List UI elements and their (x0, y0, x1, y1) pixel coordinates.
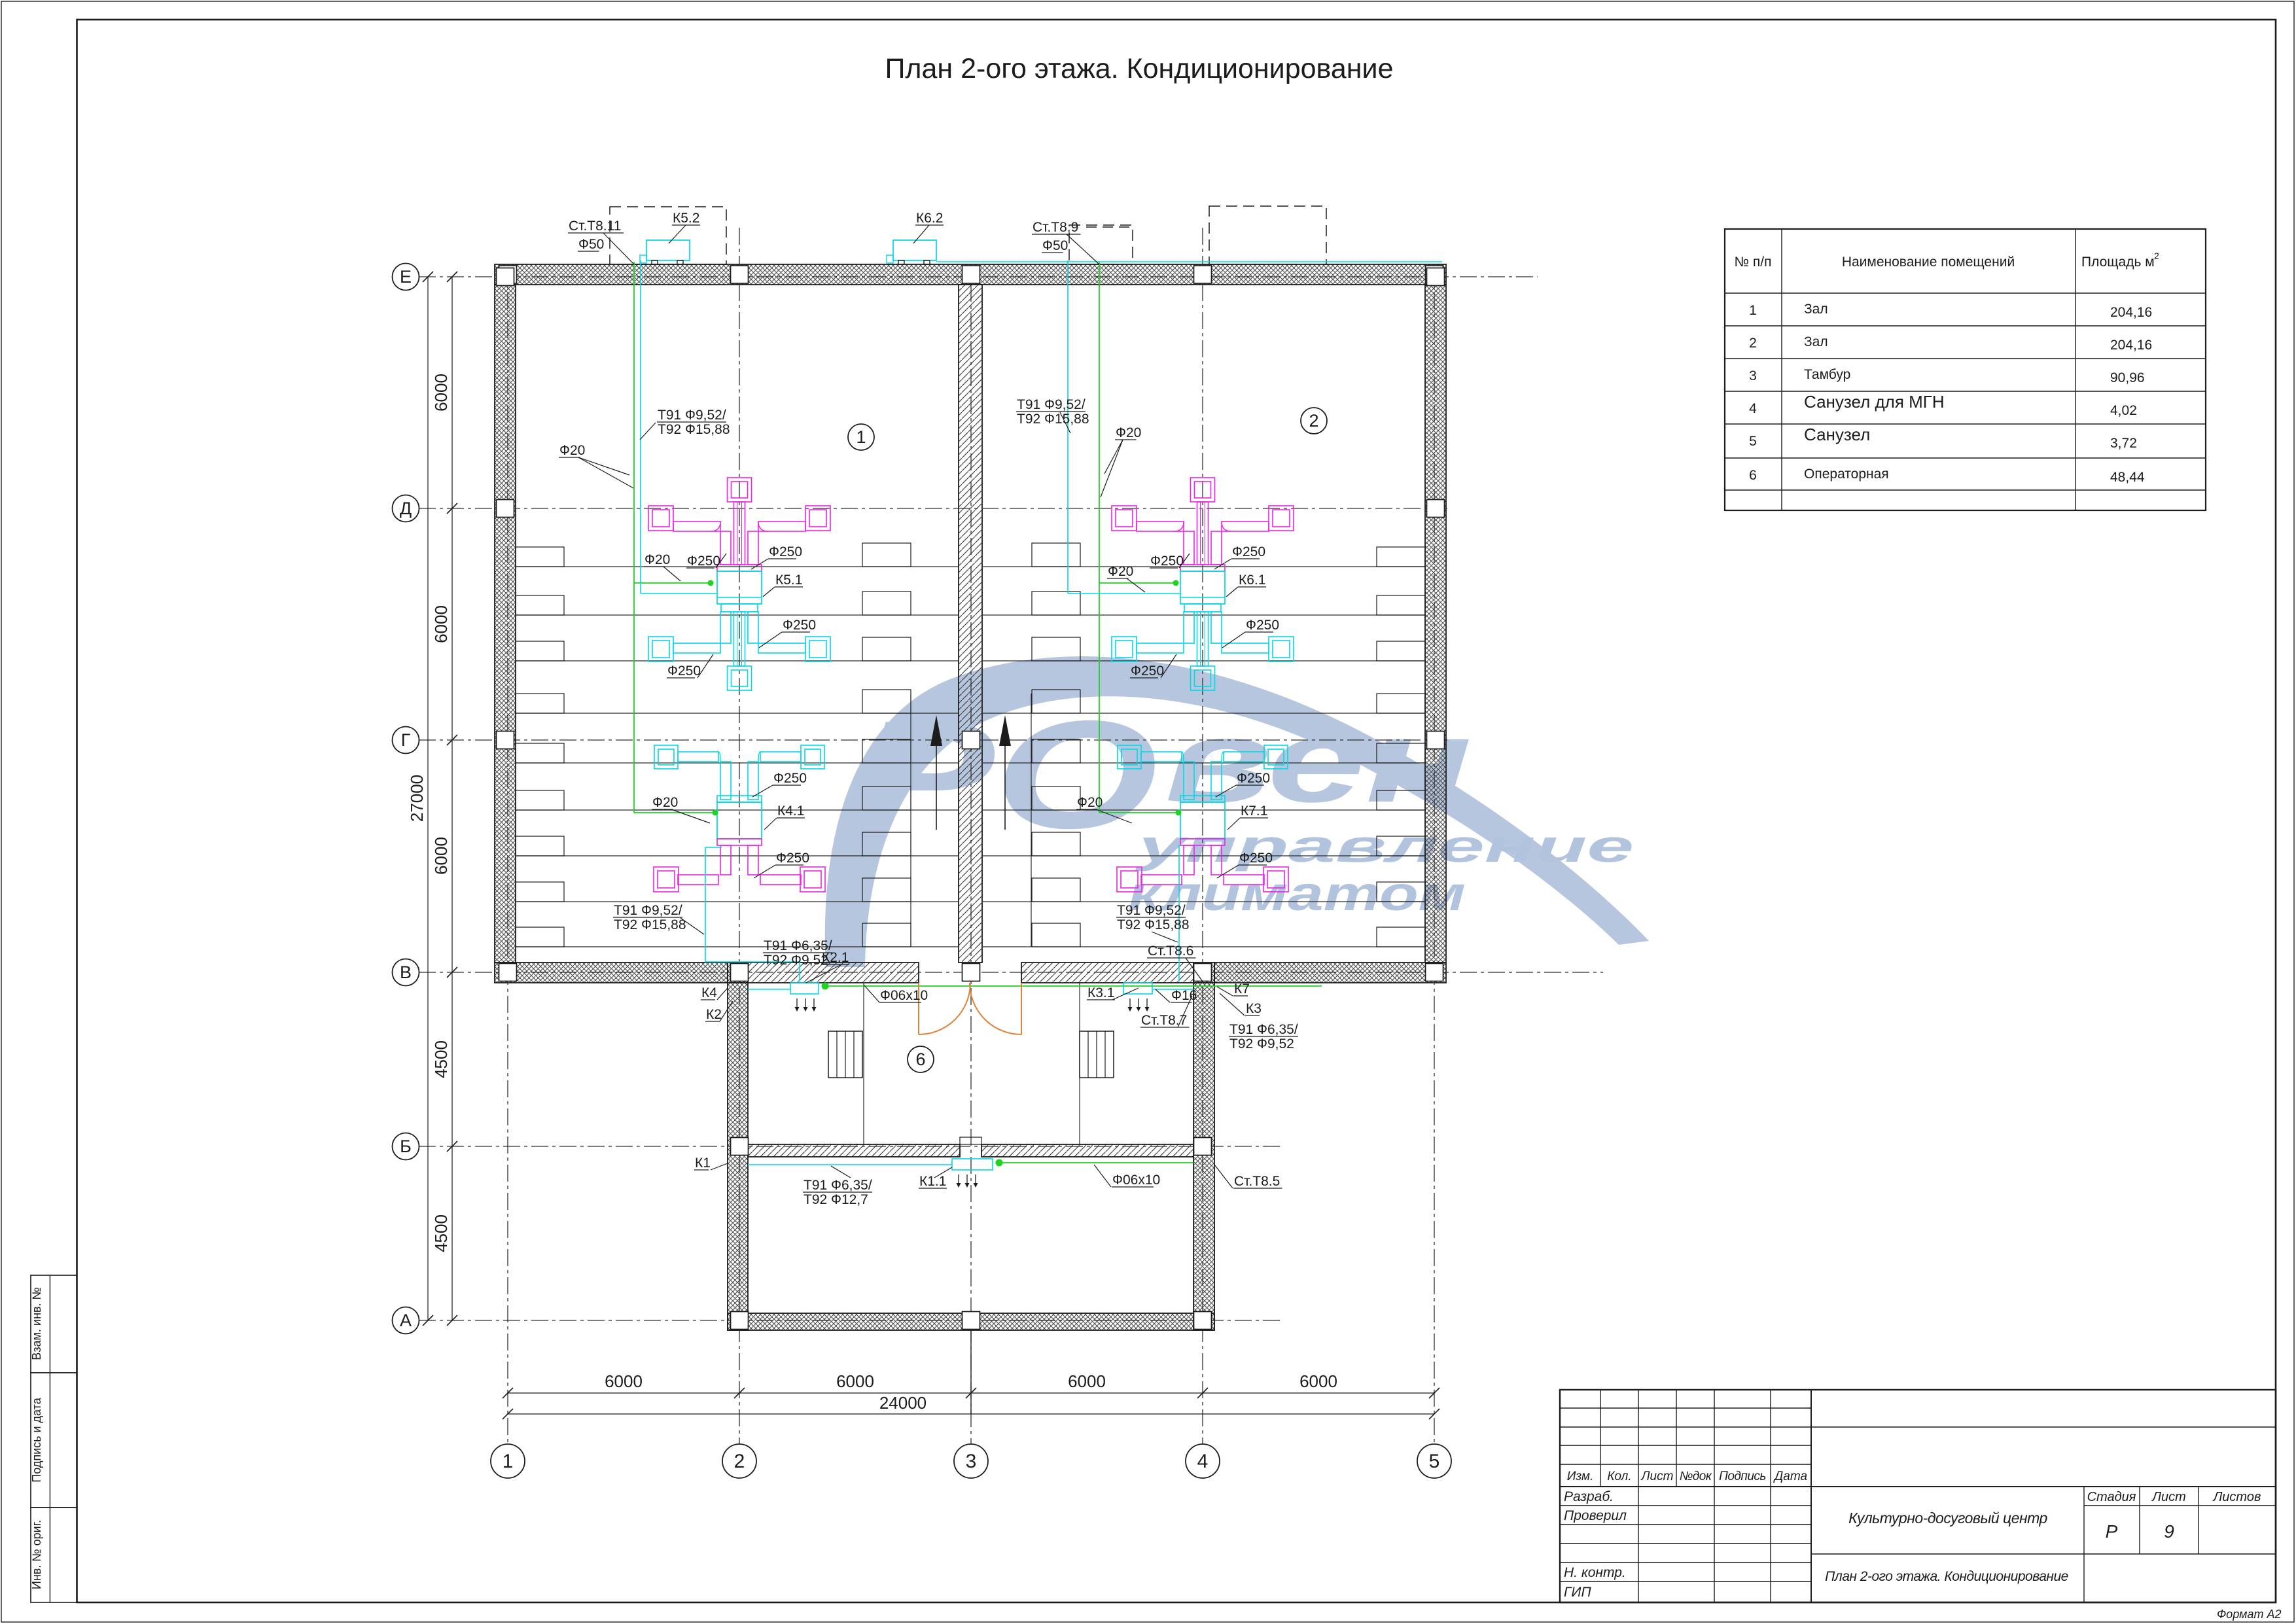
svg-text:Т91 Ф9,52/: Т91 Ф9,52/ (1017, 397, 1086, 412)
svg-text:Ф20: Ф20 (652, 795, 678, 810)
svg-text:Подпись: Подпись (1719, 1470, 1766, 1483)
svg-text:Ст.Т8.11: Ст.Т8.11 (569, 219, 621, 234)
svg-text:К7: К7 (1234, 981, 1250, 997)
svg-text:4500: 4500 (431, 1214, 451, 1252)
svg-text:3: 3 (966, 1451, 977, 1472)
svg-text:1: 1 (856, 427, 866, 447)
svg-text:Ст.Т8.7: Ст.Т8.7 (1141, 1013, 1187, 1028)
svg-text:План 2-ого этажа. Кондициониро: План 2-ого этажа. Кондиционирование (1825, 1569, 2068, 1584)
svg-text:48,44: 48,44 (2110, 470, 2145, 485)
svg-text:Т92 Ф9,52: Т92 Ф9,52 (764, 953, 828, 968)
svg-text:К3.1: К3.1 (1087, 985, 1114, 1000)
svg-text:Операторная: Операторная (1804, 467, 1889, 482)
svg-text:Ф250: Ф250 (783, 618, 816, 633)
svg-text:90,96: 90,96 (2110, 370, 2145, 385)
svg-text:204,16: 204,16 (2110, 338, 2152, 353)
svg-text:3,72: 3,72 (2110, 436, 2137, 451)
svg-text:Взам. инв. №: Взам. инв. № (30, 1287, 43, 1360)
svg-text:План 2-ого этажа. Кондициониро: План 2-ого этажа. Кондиционирование (885, 53, 1394, 84)
svg-text:№док: №док (1680, 1470, 1712, 1483)
svg-text:6000: 6000 (431, 374, 451, 412)
svg-text:ГИП: ГИП (1564, 1585, 1591, 1600)
svg-text:К2: К2 (706, 1007, 722, 1022)
svg-text:24000: 24000 (879, 1393, 927, 1413)
svg-text:Ст.Т8.5: Ст.Т8.5 (1234, 1174, 1280, 1189)
svg-text:Изм.: Изм. (1567, 1470, 1594, 1483)
svg-text:4,02: 4,02 (2110, 403, 2137, 418)
svg-text:2: 2 (1749, 336, 1757, 351)
svg-text:Т91 Ф9,52/: Т91 Ф9,52/ (658, 408, 726, 423)
svg-text:4500: 4500 (431, 1040, 451, 1078)
svg-text:6: 6 (1749, 468, 1757, 483)
svg-text:Листов: Листов (2212, 1490, 2261, 1504)
svg-text:Инв. № ориг.: Инв. № ориг. (30, 1520, 43, 1589)
svg-text:Т91 Ф9,52/: Т91 Ф9,52/ (614, 903, 682, 918)
svg-text:Зал: Зал (1804, 302, 1828, 317)
svg-text:Ф20: Ф20 (1077, 795, 1103, 810)
svg-text:Ф20: Ф20 (559, 443, 585, 458)
svg-text:Т92 Ф15,88: Т92 Ф15,88 (1017, 412, 1089, 427)
svg-text:204,16: 204,16 (2110, 305, 2152, 320)
svg-text:Ф250: Ф250 (687, 554, 720, 569)
svg-text:Формат А2: Формат А2 (2217, 1608, 2282, 1621)
svg-text:Ф250: Ф250 (1232, 544, 1265, 559)
svg-text:6000: 6000 (605, 1371, 643, 1391)
svg-text:5: 5 (1429, 1451, 1440, 1472)
svg-text:Ф250: Ф250 (1131, 663, 1164, 679)
svg-text:В: В (400, 962, 412, 982)
svg-text:Ф250: Ф250 (1150, 554, 1184, 569)
svg-text:Наименование помещений: Наименование помещений (1842, 255, 2015, 270)
svg-text:2: 2 (2154, 251, 2159, 261)
svg-text:управление: управление (1135, 821, 1634, 872)
svg-text:Н. контр.: Н. контр. (1564, 1565, 1626, 1580)
svg-text:РО: РО (854, 688, 1158, 860)
svg-text:9: 9 (2164, 1521, 2174, 1542)
svg-text:6000: 6000 (836, 1371, 874, 1391)
svg-text:2: 2 (734, 1451, 745, 1472)
svg-text:3: 3 (1749, 368, 1757, 383)
svg-text:К5.1: К5.1 (775, 573, 802, 588)
svg-text:Т92 Ф15,88: Т92 Ф15,88 (1117, 917, 1190, 932)
svg-text:Ф20: Ф20 (1116, 425, 1141, 440)
svg-text:Культурно-досуговый центр: Культурно-досуговый центр (1848, 1509, 2047, 1527)
svg-text:Лист: Лист (2151, 1490, 2186, 1504)
svg-text:Ф50: Ф50 (1042, 238, 1068, 253)
svg-text:Ф06х10: Ф06х10 (1112, 1173, 1160, 1188)
svg-text:Т91 Ф6,35/: Т91 Ф6,35/ (804, 1178, 872, 1193)
svg-text:4: 4 (1197, 1451, 1209, 1472)
svg-text:К7.1: К7.1 (1241, 803, 1267, 819)
svg-text:Разраб.: Разраб. (1564, 1489, 1614, 1504)
svg-text:Т92 Ф15,88: Т92 Ф15,88 (614, 917, 686, 932)
svg-text:Б: Б (400, 1137, 412, 1156)
svg-text:Т91 Ф9,52/: Т91 Ф9,52/ (1117, 903, 1186, 918)
svg-text:Зал: Зал (1804, 334, 1828, 349)
svg-text:Дата: Дата (1773, 1470, 1807, 1483)
svg-text:Е: Е (400, 267, 412, 287)
svg-text:Ф06х10: Ф06х10 (880, 988, 928, 1003)
svg-text:Площадь м: Площадь м (2081, 255, 2155, 270)
svg-text:№ п/п: № п/п (1735, 255, 1772, 270)
svg-text:К1: К1 (695, 1156, 711, 1171)
svg-text:5: 5 (1749, 434, 1757, 449)
svg-text:К6.2: К6.2 (916, 211, 943, 226)
svg-text:Стадия: Стадия (2087, 1490, 2136, 1504)
svg-text:Р: Р (2106, 1521, 2118, 1542)
svg-text:Ф250: Ф250 (667, 663, 701, 679)
svg-text:Кол.: Кол. (1607, 1470, 1631, 1483)
svg-text:2: 2 (1309, 411, 1318, 431)
svg-text:Ст.Т8.9: Ст.Т8.9 (1033, 220, 1078, 235)
svg-text:Ф250: Ф250 (773, 771, 807, 786)
svg-text:Т92 Ф9,52: Т92 Ф9,52 (1229, 1036, 1294, 1051)
svg-text:Ф250: Ф250 (1237, 771, 1270, 786)
svg-text:6000: 6000 (431, 605, 451, 643)
svg-text:К6.1: К6.1 (1239, 573, 1265, 588)
svg-text:Подпись и дата: Подпись и дата (30, 1397, 43, 1482)
svg-text:Т92 Ф15,88: Т92 Ф15,88 (658, 422, 730, 437)
svg-text:Ф250: Ф250 (1246, 618, 1279, 633)
svg-text:6000: 6000 (431, 837, 451, 875)
svg-text:1: 1 (503, 1451, 514, 1472)
svg-text:К1.1: К1.1 (919, 1174, 946, 1189)
svg-text:Г: Г (401, 730, 411, 750)
svg-text:27000: 27000 (407, 775, 427, 822)
svg-text:1: 1 (1749, 303, 1757, 318)
svg-text:А: А (400, 1311, 412, 1330)
svg-text:К4.1: К4.1 (777, 803, 804, 819)
svg-text:Т91 Ф6,35/: Т91 Ф6,35/ (1229, 1022, 1298, 1037)
svg-text:Ст.Т8.6: Ст.Т8.6 (1148, 944, 1193, 959)
svg-text:К3: К3 (1246, 1001, 1262, 1016)
svg-text:6: 6 (915, 1050, 925, 1069)
svg-text:Ф250: Ф250 (776, 851, 809, 866)
svg-text:6000: 6000 (1299, 1371, 1337, 1391)
svg-text:Ф20: Ф20 (1108, 564, 1133, 579)
svg-text:К4: К4 (701, 985, 717, 1000)
svg-text:Санузел для МГН: Санузел для МГН (1804, 392, 1945, 412)
svg-text:Ф20: Ф20 (645, 552, 670, 567)
svg-text:Тамбур: Тамбур (1804, 367, 1850, 382)
svg-text:Ф250: Ф250 (769, 544, 802, 559)
svg-text:Проверил: Проверил (1564, 1508, 1627, 1523)
svg-text:К2.1: К2.1 (822, 950, 849, 965)
svg-text:Ф250: Ф250 (1239, 851, 1273, 866)
svg-text:Санузел: Санузел (1804, 425, 1870, 444)
svg-text:Ф50: Ф50 (578, 237, 604, 252)
svg-text:К5.2: К5.2 (673, 211, 699, 226)
svg-text:4: 4 (1749, 401, 1757, 416)
svg-text:Лист: Лист (1640, 1470, 1674, 1483)
svg-text:6000: 6000 (1068, 1371, 1106, 1391)
svg-text:Д: Д (400, 499, 412, 518)
svg-text:Т92 Ф12,7: Т92 Ф12,7 (804, 1192, 868, 1207)
svg-text:Ф16: Ф16 (1171, 988, 1197, 1003)
